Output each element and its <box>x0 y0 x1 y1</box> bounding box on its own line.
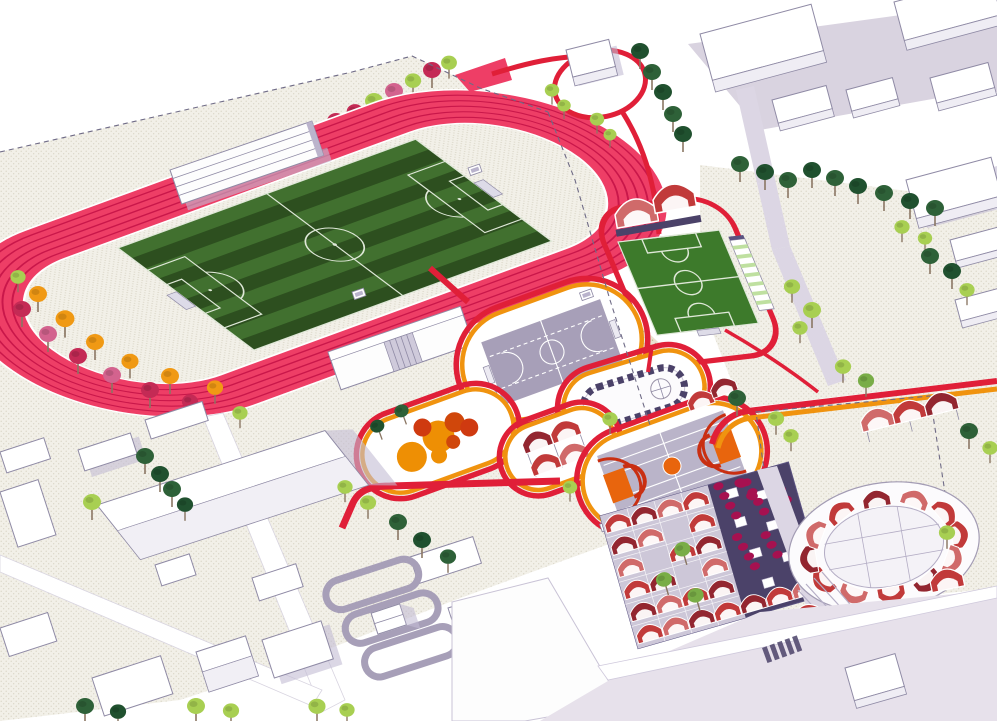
flowering-shrub <box>735 478 748 488</box>
site-rendering <box>0 0 997 721</box>
flowering-shrub <box>746 492 758 501</box>
